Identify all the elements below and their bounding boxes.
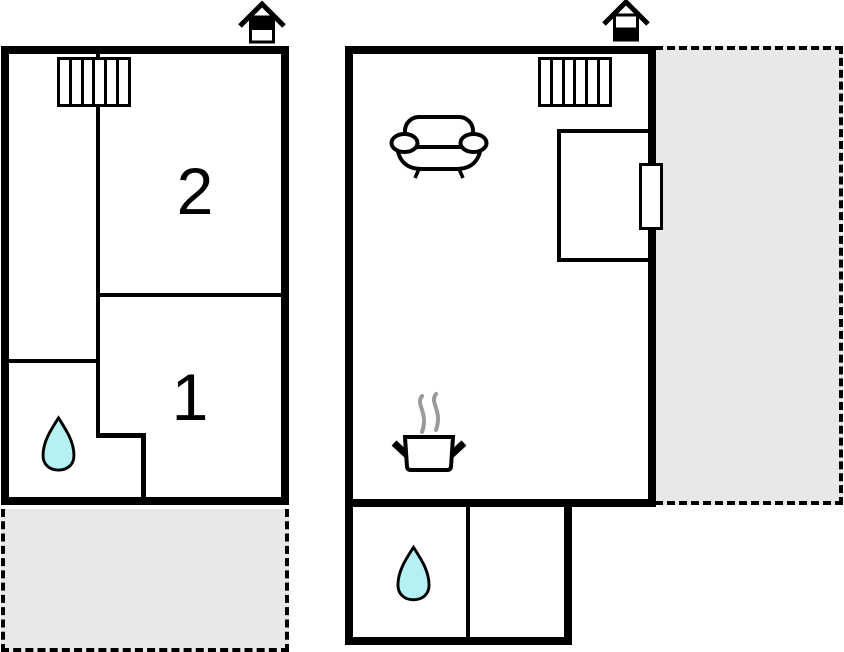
stair-step bbox=[119, 60, 128, 104]
stair-step bbox=[565, 60, 577, 104]
stair-step bbox=[60, 60, 72, 104]
outer-wall-left bbox=[1, 46, 9, 505]
stair-step bbox=[600, 60, 609, 104]
floor-plan-canvas: 2 1 bbox=[0, 0, 844, 652]
cooking-pot-icon bbox=[389, 391, 469, 475]
room-label-1: 1 bbox=[155, 364, 225, 430]
annex-wall-right bbox=[564, 499, 572, 645]
terrace-area bbox=[655, 46, 843, 505]
outer-wall-top bbox=[345, 46, 656, 54]
steam-icon bbox=[434, 394, 438, 430]
outer-wall-top bbox=[1, 46, 289, 54]
staircase-icon bbox=[538, 57, 612, 107]
chimney-icon bbox=[602, 0, 650, 44]
inner-wall-vertical bbox=[96, 54, 100, 437]
staircase-icon bbox=[57, 57, 131, 107]
room-label-2: 2 bbox=[160, 158, 230, 224]
room-divider-wall bbox=[96, 293, 281, 297]
water-drop-icon bbox=[41, 416, 76, 472]
terrace-area bbox=[1, 509, 289, 652]
stair-step bbox=[588, 60, 600, 104]
steam-icon bbox=[420, 396, 424, 432]
annex-wall-bottom bbox=[345, 637, 572, 645]
stair-step bbox=[576, 60, 588, 104]
main-bottom-wall bbox=[345, 499, 656, 507]
room-wall-left bbox=[557, 129, 561, 262]
window-icon bbox=[639, 163, 663, 230]
bathroom-wall bbox=[9, 359, 100, 363]
annex-divider-wall bbox=[466, 507, 470, 637]
outer-wall-left bbox=[345, 46, 353, 645]
stair-step bbox=[72, 60, 84, 104]
outer-wall-right bbox=[281, 46, 289, 505]
step-wall-horizontal bbox=[96, 433, 146, 438]
outer-wall-right bbox=[648, 46, 656, 507]
stair-step bbox=[84, 60, 96, 104]
chimney-icon bbox=[238, 0, 286, 46]
stair-step bbox=[541, 60, 553, 104]
room-wall-top bbox=[557, 129, 648, 133]
room-wall-bottom bbox=[557, 258, 648, 262]
outer-wall-bottom bbox=[1, 497, 289, 505]
stair-step bbox=[107, 60, 119, 104]
step-wall-vertical bbox=[141, 433, 146, 497]
water-drop-icon bbox=[396, 545, 431, 602]
stair-step bbox=[553, 60, 565, 104]
sofa-icon bbox=[389, 111, 489, 179]
stair-step bbox=[95, 60, 107, 104]
